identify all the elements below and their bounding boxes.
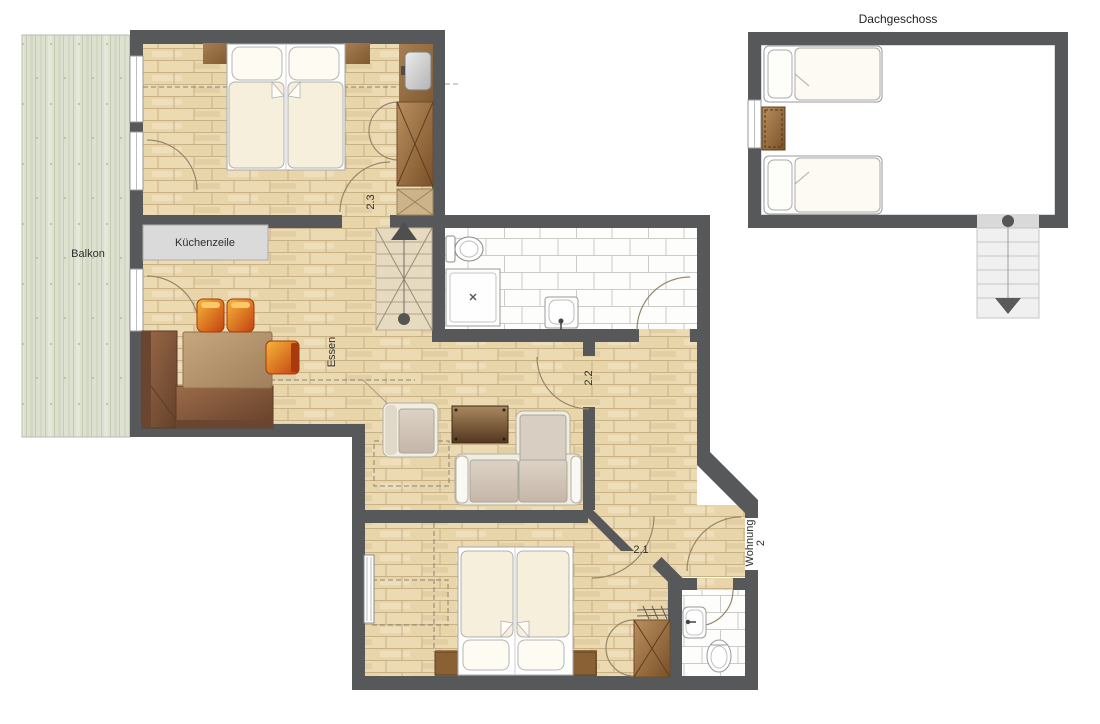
attic-bed-icon [764,46,882,102]
balcony-door-kitchen-icon [130,269,143,331]
attic-dresser [762,107,785,150]
dining-label: Essen [326,337,338,368]
double-bed-icon [227,44,345,170]
apartment-label: Wohnung 2 [745,520,767,567]
wc-toilet-icon [707,640,731,672]
balcony-label: Balkon [71,248,105,260]
hall-wardrobe-icon [634,620,670,677]
double-bed-icon [458,547,573,675]
nightstand [203,43,230,64]
armchair-icon [383,403,438,457]
room-2-1-label: 2.1 [633,544,648,556]
dining-table [183,332,272,388]
stairs-down-icon [977,215,1039,318]
attic-bed-icon [764,156,882,214]
attic-unit [748,32,1068,318]
radiator-icon [405,52,431,90]
toilet-icon [446,236,483,262]
nightstand [343,43,370,64]
room-2-2-label: 2.2 [583,370,595,385]
dining-chair-icon [266,341,299,374]
attic-window-icon [748,100,761,148]
stair-newel-dot [1002,215,1014,227]
bar-stool-icon [197,299,224,332]
balcony-deck [22,35,130,437]
room-2-3-label: 2.3 [365,194,377,209]
shower-icon [446,269,500,326]
floorplan-drawing [0,0,1100,724]
stair-newel-dot [398,313,410,325]
kitchen-unit-label: Küchenzeile [175,237,235,249]
under-stair-cupboard [397,189,433,215]
attic-title: Dachgeschoss [859,12,938,26]
nightstand [435,652,458,675]
sideboard [452,406,508,443]
nightstand [573,652,596,675]
stairs-up-icon [376,222,432,330]
floorplan-canvas: Balkon Küchenzeile Essen 2.3 2.2 2.1 Woh… [0,0,1100,724]
radiator-icon [364,555,374,623]
washbasin-icon [545,297,578,330]
apartment-label-line2: 2 [756,520,767,567]
wardrobe-icon [397,102,433,186]
balcony-door-bedroom-icon [130,132,143,190]
window-icon [130,56,143,122]
bar-stool-icon [227,299,254,332]
wc-washbasin-icon [683,607,706,638]
